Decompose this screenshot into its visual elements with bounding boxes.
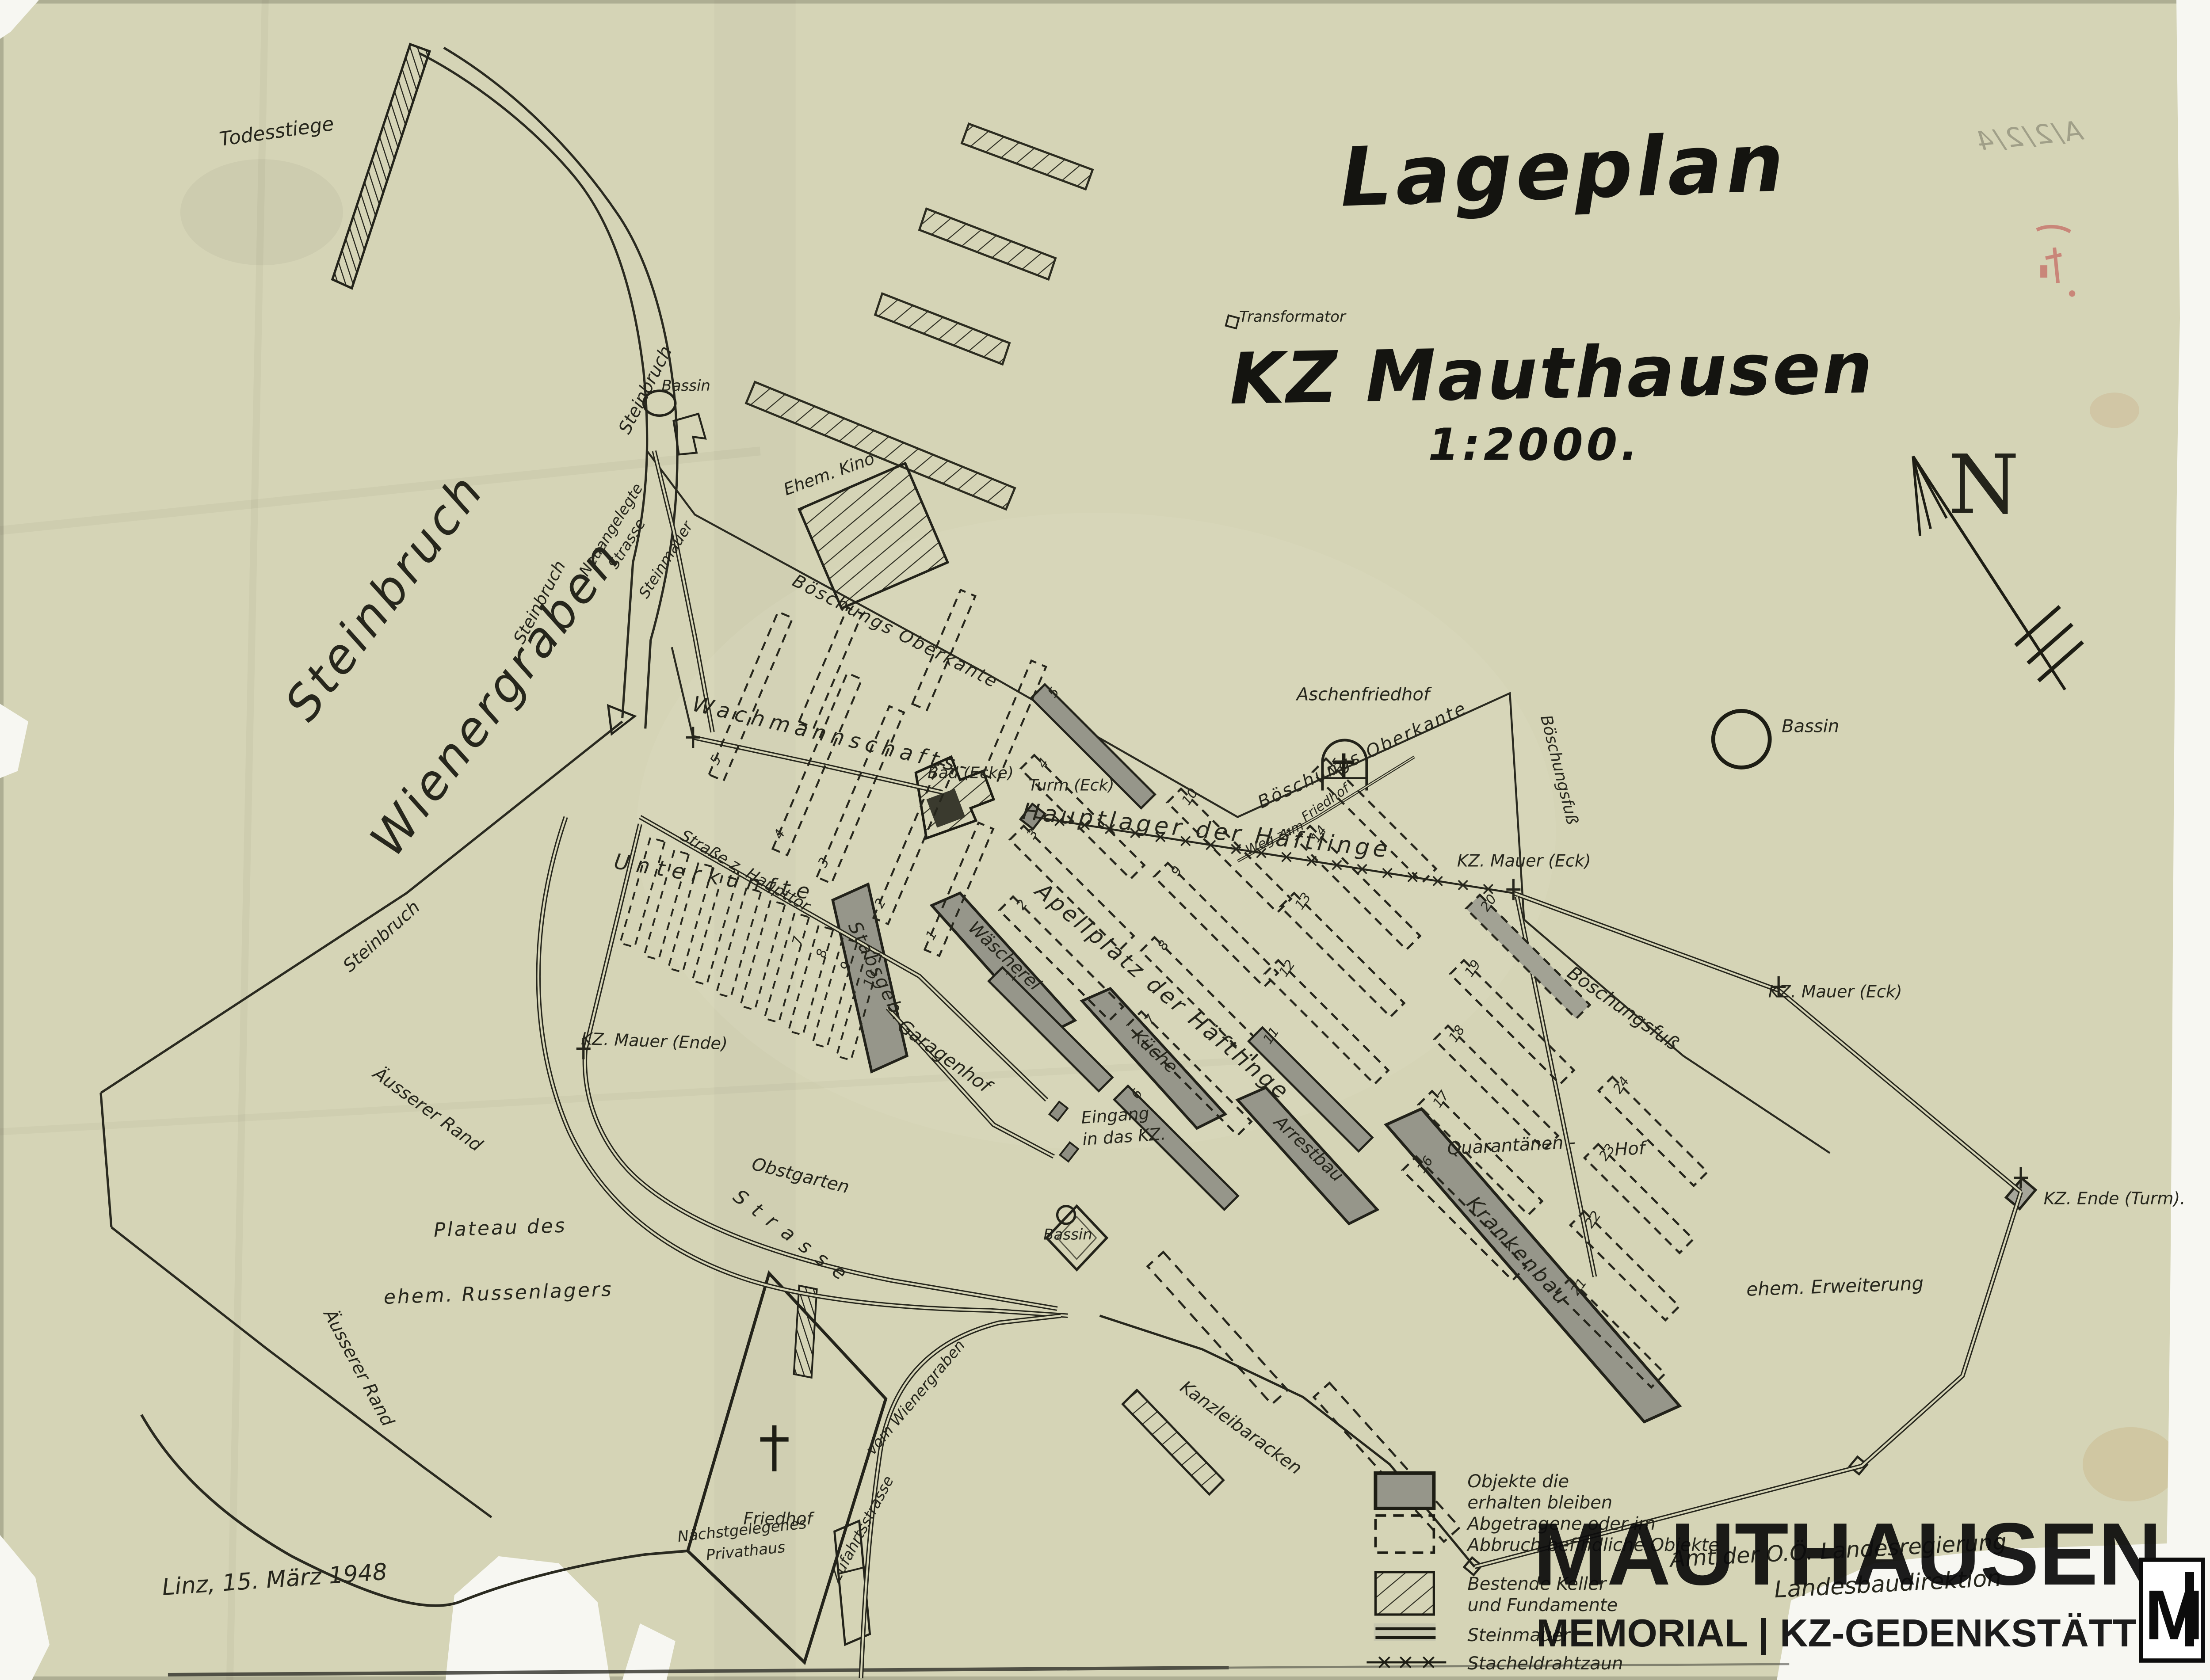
logo-subtitle: MEMORIAL | KZ-GEDENKSTÄTTE bbox=[1536, 1611, 2162, 1655]
label-kz-mauer-eck-1: KZ. Mauer (Eck) bbox=[1457, 851, 1591, 871]
map-title-line1: Lageplan bbox=[1339, 115, 1789, 225]
site-plan-svg: 1234567891011121314151617181920212223241… bbox=[0, 0, 2210, 1680]
label-transformator: Transformator bbox=[1239, 308, 1347, 326]
map-scale: 1:2000. bbox=[1428, 419, 1641, 470]
paper-stain bbox=[2090, 392, 2139, 428]
paper-stain bbox=[2083, 1427, 2178, 1501]
label-turm-eck: Turm (Eck) bbox=[1029, 776, 1115, 794]
scanned-site-plan: 1234567891011121314151617181920212223241… bbox=[0, 0, 2210, 1680]
label-bassin-right: Bassin bbox=[1782, 716, 1839, 736]
legend-label: Objekte die bbox=[1467, 1471, 1569, 1492]
label-bassin-top: Bassin bbox=[661, 377, 710, 395]
north-label: N bbox=[1948, 438, 2019, 532]
label-kz-ende-turm: KZ. Ende (Turm). bbox=[2044, 1189, 2186, 1208]
legend-label: Stacheldrahtzaun bbox=[1467, 1653, 1623, 1674]
label-kz-mauer-eck-2: KZ. Mauer (Eck) bbox=[1768, 982, 1902, 1002]
logo-monogram: M bbox=[2145, 1575, 2203, 1654]
legend-symbol-hatched bbox=[1375, 1572, 1434, 1615]
logo-title: MAUTHAUSEN bbox=[1533, 1505, 2162, 1604]
label-bassin-mid: Bassin bbox=[1043, 1226, 1092, 1244]
label-hof: Hof bbox=[1614, 1138, 1648, 1160]
label-aschenfriedhof: Aschenfriedhof bbox=[1295, 684, 1432, 705]
memorial-logo: MAUTHAUSEN MEMORIAL | KZ-GEDENKSTÄTTE M bbox=[1533, 1505, 2203, 1661]
label-plateau-1: Plateau des bbox=[433, 1214, 567, 1241]
map-title-line2: KZ Mauthausen bbox=[1229, 326, 1875, 420]
paper-background bbox=[0, 0, 2210, 1680]
logo-monogram-bar bbox=[2185, 1572, 2194, 1646]
legend-symbol-solid bbox=[1375, 1473, 1434, 1509]
